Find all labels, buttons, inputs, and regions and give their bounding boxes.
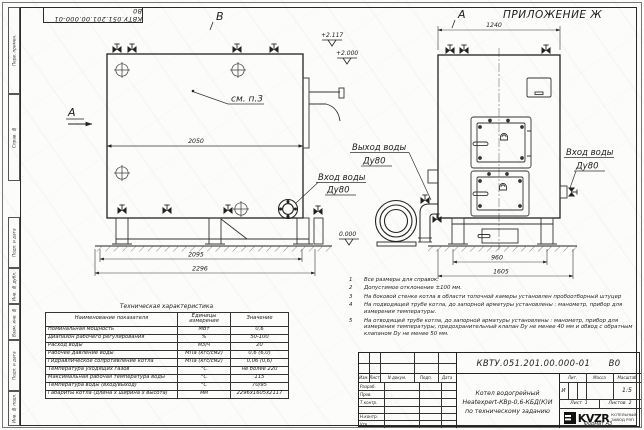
tech-cell-units: % — [178, 334, 231, 342]
tech-cell-units: °С — [178, 366, 231, 374]
tech-header-units: Единицы измерения — [178, 313, 231, 327]
view-a-label: А — [457, 8, 466, 21]
tech-cell-value: 2296х1605х2117 — [231, 390, 289, 398]
product-name-cell: Котел водогрейный Heatexpert-КВр-0,6-КБД… — [456, 373, 559, 428]
sig-row-utv: Утв. — [360, 420, 384, 428]
tech-table-row: Диапазон рабочего регулирования%50-100 — [46, 334, 289, 342]
tech-table-row: Температура воды (вход/выход)°С70/95 — [46, 382, 289, 390]
tech-table-header-row: Наименование показателя Единицы измерени… — [46, 313, 289, 327]
sig-row-prov: Пров. — [360, 390, 384, 398]
dim-2296: 2296 — [192, 266, 208, 273]
sig-row-tkontr: Т.контр. — [360, 398, 384, 406]
note-item: 4На подводящей трубе котла, до запорной … — [349, 302, 635, 316]
sig-col-dokum: N докум. — [380, 373, 414, 382]
tech-cell-name: Габариты котла (длина х ширина х высота) — [46, 390, 178, 398]
tech-cell-value: 0,06 (0,6) — [231, 358, 289, 366]
tech-cell-value: 0,6 (6,0) — [231, 350, 289, 358]
tech-cell-name: Расход воды — [46, 342, 178, 350]
title-block: Изм. Лист N докум. Подп. Дата Разраб. Пр… — [358, 352, 640, 427]
section-a-label: А — [67, 106, 76, 119]
view-b-label: В — [216, 10, 224, 23]
doc-number: КВТУ.051.201.00.000-01 — [477, 358, 591, 368]
tech-cell-units: мм — [178, 390, 231, 398]
flue-stub — [303, 78, 344, 148]
note-text: На подводящей трубе котла, до запорной а… — [364, 302, 635, 316]
tech-header-value: Значение — [231, 313, 289, 327]
note-item: 1Все размеры для справок. — [349, 277, 635, 284]
note-number: 5 — [349, 318, 364, 339]
notes-list: 1Все размеры для справок.2Допустимое отк… — [349, 277, 635, 340]
note-text: Все размеры для справок. — [364, 277, 635, 284]
lower-door — [471, 171, 529, 216]
tech-cell-units: °С — [178, 374, 231, 382]
tech-table-title: Техническая характеристика — [45, 303, 288, 310]
lifting-lug-icon — [230, 62, 246, 78]
sheet-number-cell: Лист 1 — [559, 399, 599, 408]
tech-cell-name: Номинальная мощность — [46, 326, 178, 334]
product-name-line2: Heatexpert-КВр-0,6-КБД(К)И — [463, 398, 553, 407]
upper-door — [471, 117, 531, 168]
lifting-lug-icon — [114, 62, 130, 78]
tech-cell-name: Температура воды (вход/выход) — [46, 382, 178, 390]
inlet-right-label-1: Вход воды — [566, 148, 614, 158]
base-ash-pit — [448, 218, 557, 244]
note-item: 2Допустимое отклонение ±100 мм. — [349, 285, 635, 292]
control-panel-door — [527, 78, 551, 97]
elevation-2000: +2.000 — [336, 50, 358, 57]
tech-cell-value: 20 — [231, 342, 289, 350]
product-name-line1: Котел водогрейный — [476, 389, 540, 398]
note-text: Допустимое отклонение ±100 мм. — [364, 285, 635, 292]
note-text: На боковой стенке котла в области топочн… — [364, 294, 635, 301]
note-item: 3На боковой стенке котла в области топоч… — [349, 294, 635, 301]
lifting-lug-icon — [114, 165, 130, 181]
tech-header-name: Наименование показателя — [46, 313, 178, 327]
dim-1240: 1240 — [486, 22, 502, 29]
sig-col-podp: Подп. — [414, 373, 438, 382]
elevation-0000: 0.000 — [339, 231, 356, 238]
sheets-total-cell: Листов 2 — [599, 399, 641, 408]
lifting-lug-icon — [233, 201, 249, 217]
format-label: Формат А3 — [556, 421, 640, 427]
water-inlet-flange — [279, 200, 298, 219]
tech-table-row: Гидравлическое сопротивление котлаМПа (к… — [46, 358, 289, 366]
dim-2095: 2095 — [188, 252, 204, 259]
tech-table-row: Максимальная рабочая температура воды°С1… — [46, 374, 289, 382]
outlet-label-2: Ду80 — [362, 157, 386, 167]
tech-cell-name: Температура уходящих газов — [46, 366, 178, 374]
sig-row-razrab: Разраб. — [360, 382, 384, 390]
appendix-label: ПРИЛОЖЕНИЕ Ж — [503, 9, 602, 21]
tech-cell-name: Диапазон рабочего регулирования — [46, 334, 178, 342]
tech-cell-units: МПа (кгс/см2) — [178, 358, 231, 366]
scale-value: 1:5 — [613, 382, 641, 399]
doc-number-cell: КВТУ.051.201.00.000-01 В0 — [456, 353, 641, 373]
lit-value: И — [559, 382, 568, 399]
tech-table-row: Номинальная мощностьМВт0,6 — [46, 326, 289, 334]
tech-cell-value: 50-100 — [231, 334, 289, 342]
inlet-left-label-2: Ду80 — [326, 186, 350, 196]
inlet-right-label-2: Ду80 — [575, 162, 599, 172]
tech-table: Наименование показателя Единицы измерени… — [45, 312, 289, 399]
draft-fan — [376, 201, 439, 247]
callout-see-p3: см. п.3 — [231, 95, 263, 105]
dim-1605: 1605 — [493, 269, 509, 276]
tech-cell-value: 70/95 — [231, 382, 289, 390]
product-name-line3: по техническому заданию — [465, 407, 550, 416]
note-item: 5На отводящей трубе котла, до запорной а… — [349, 318, 635, 339]
tech-table-row: Габариты котла (длина х ширина х высота)… — [46, 390, 289, 398]
sig-col-data: Дата — [438, 373, 456, 382]
tech-cell-value: 0,6 — [231, 326, 289, 334]
tech-cell-units: МПа (кгс/см2) — [178, 350, 231, 358]
drawing-sheet: Перв. примен.Справ. №Подп. и датаИнв. № … — [0, 0, 644, 430]
tech-table-row: Температура уходящих газов°Сне более 220 — [46, 366, 289, 374]
tech-cell-units: °С — [178, 382, 231, 390]
tech-cell-units: м3/ч — [178, 342, 231, 350]
lit-header: Лит. — [559, 373, 586, 382]
scale-header: Масштаб — [613, 373, 641, 382]
sig-col-list: Лист — [369, 373, 380, 382]
tech-cell-name: Гидравлическое сопротивление котла — [46, 358, 178, 366]
note-text: На отводящей трубе котла, до запорной ар… — [364, 318, 635, 339]
tech-cell-value: не более 220 — [231, 366, 289, 374]
inlet-left-label-1: Вход воды — [318, 173, 366, 183]
side-view: см. п.3 2050 — [66, 10, 366, 276]
note-number: 3 — [349, 294, 364, 301]
sig-col-izm: Изм. — [359, 373, 369, 382]
dim-2050: 2050 — [188, 138, 204, 145]
front-view: 1240 — [428, 8, 614, 279]
tech-cell-name: Рабочее давление воды — [46, 350, 178, 358]
note-number: 1 — [349, 277, 364, 284]
mass-header: Масса — [586, 373, 613, 382]
note-number: 4 — [349, 302, 364, 316]
tech-cell-units: МВт — [178, 326, 231, 334]
tech-cell-name: Максимальная рабочая температура воды — [46, 374, 178, 382]
tech-cell-value: 115 — [231, 374, 289, 382]
outlet-label-1: Выход воды — [352, 143, 406, 153]
sig-row-nkontr: Н.контр. — [360, 413, 384, 420]
doc-version: В0 — [609, 358, 621, 368]
tech-table-row: Рабочее давление водыМПа (кгс/см2)0,6 (6… — [46, 350, 289, 358]
note-number: 2 — [349, 285, 364, 292]
tech-table-row: Расход водым3/ч20 — [46, 342, 289, 350]
support-frame — [112, 218, 313, 244]
dim-960: 960 — [491, 255, 503, 262]
elevation-2117: +2.117 — [321, 32, 343, 39]
